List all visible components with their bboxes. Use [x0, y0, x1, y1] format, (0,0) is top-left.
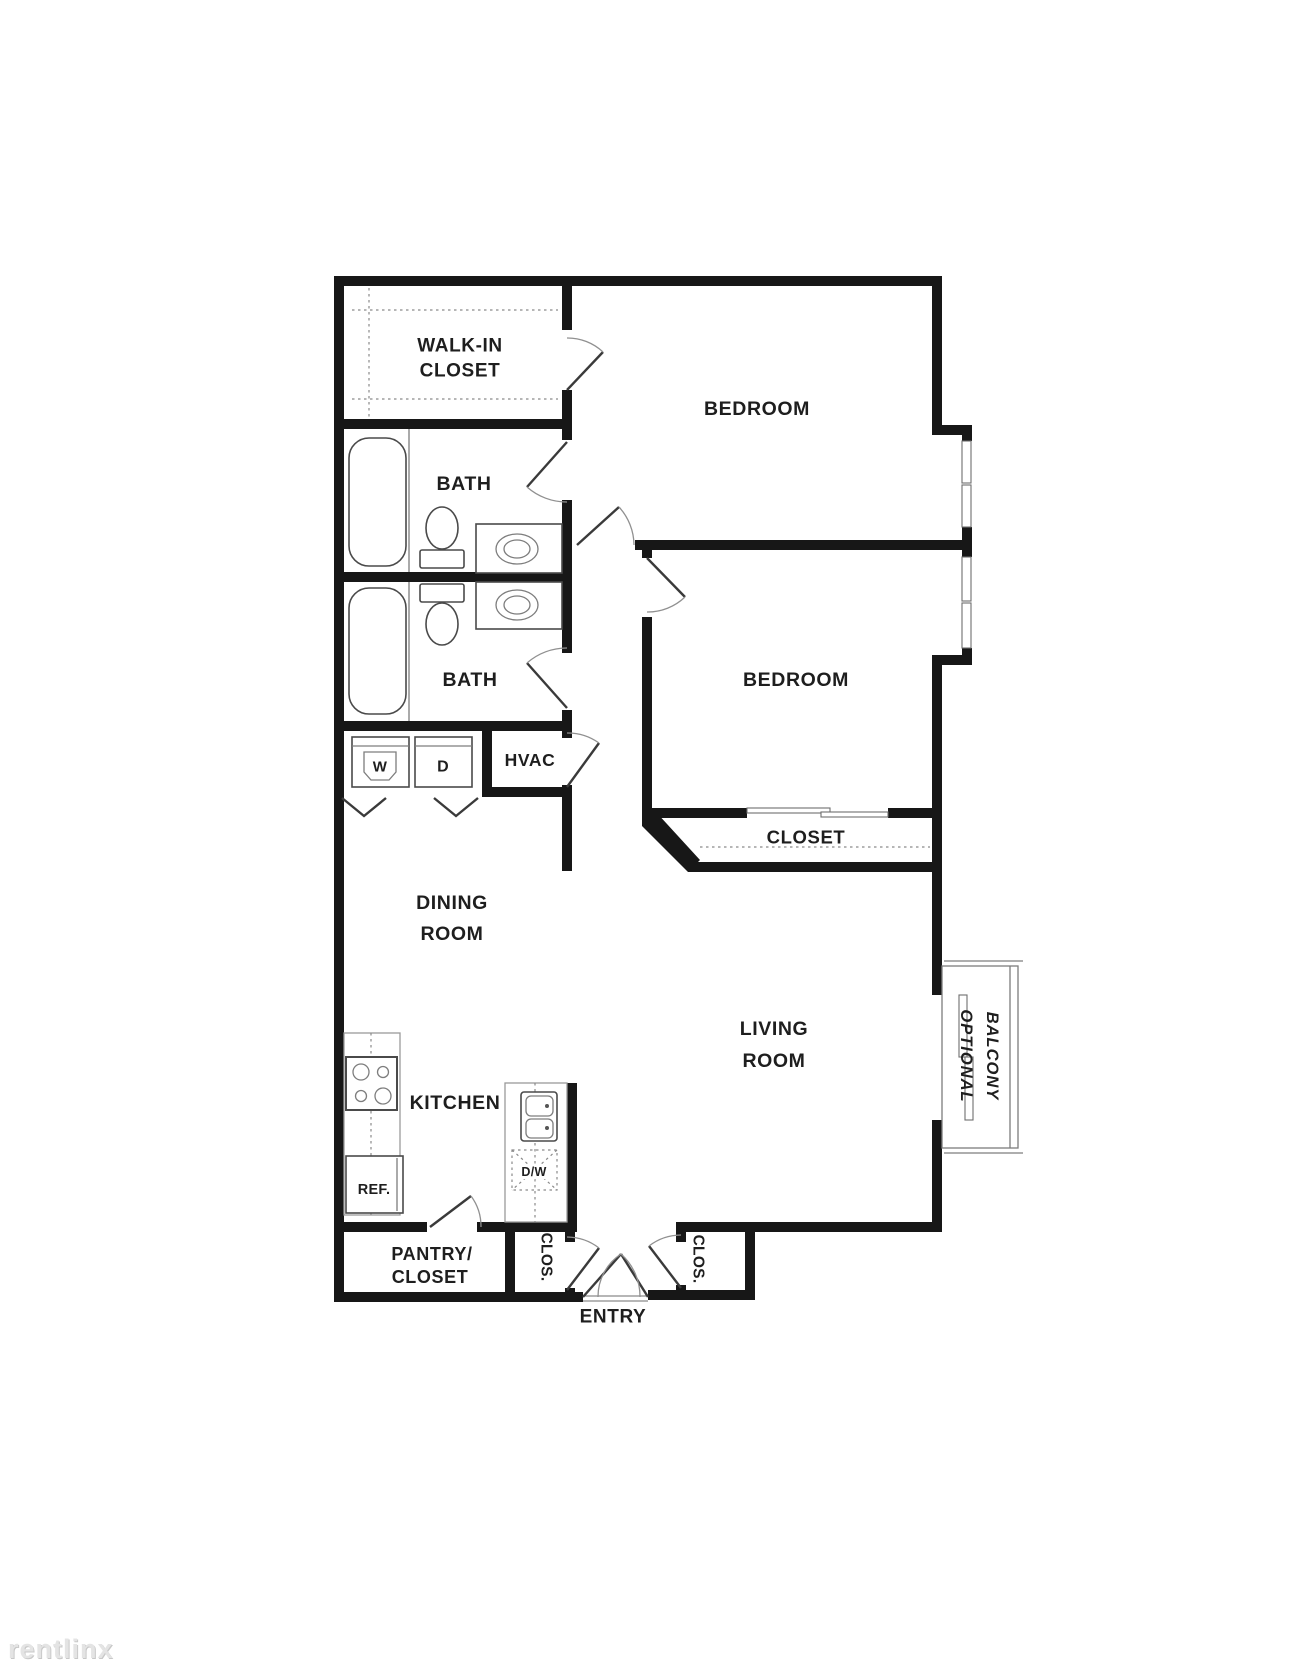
bathtub-icon-2	[349, 582, 409, 721]
label-bedroom-2: BEDROOM	[743, 669, 849, 691]
label-bath-1: BATH	[436, 473, 491, 495]
label-living-line1: LIVING	[740, 1018, 809, 1040]
stove-icon	[346, 1057, 397, 1110]
optional-balcony-outline	[942, 961, 1023, 1153]
exterior-walls	[334, 276, 972, 1302]
interior-walls	[334, 276, 972, 1302]
label-pantry-line1: PANTRY/	[391, 1244, 472, 1264]
toilet-icon-2	[420, 584, 464, 645]
label-dryer: D	[437, 759, 449, 776]
label-clos-right: CLOS.	[690, 1235, 707, 1284]
label-kitchen: KITCHEN	[410, 1092, 501, 1114]
label-clos-left: CLOS.	[538, 1233, 555, 1282]
sink-vanity-icon-2	[476, 582, 562, 629]
label-balcony-line1: OPTIONAL	[957, 1009, 975, 1102]
toilet-icon-1	[420, 507, 464, 568]
label-bedroom-1: BEDROOM	[704, 398, 810, 420]
label-living-line2: ROOM	[742, 1050, 805, 1072]
label-ref: REF.	[358, 1182, 391, 1198]
laundry-bifold-doors	[342, 798, 478, 816]
label-hvac: HVAC	[505, 750, 556, 770]
label-dining-line1: DINING	[416, 892, 488, 914]
label-washer: W	[373, 759, 388, 776]
bathtub-icon-1	[349, 429, 409, 572]
sink-vanity-icon-1	[476, 524, 562, 573]
label-closet: CLOSET	[767, 827, 846, 848]
floor-plan-drawing: WALK-IN CLOSET BEDROOM BATH BATH BEDROOM…	[0, 0, 1298, 1680]
rentlinx-watermark: rentlinx	[8, 1634, 114, 1665]
label-walk-in-closet-line1: WALK-IN	[417, 336, 502, 357]
kitchen-sink-icon	[521, 1092, 557, 1141]
label-pantry-line2: CLOSET	[392, 1267, 469, 1287]
label-walk-in-closet-line2: CLOSET	[420, 361, 501, 382]
room-labels: WALK-IN CLOSET BEDROOM BATH BATH BEDROOM…	[358, 336, 1001, 1328]
label-bath-2: BATH	[442, 669, 497, 691]
label-entry: ENTRY	[580, 1307, 647, 1328]
label-dining-line2: ROOM	[420, 923, 483, 945]
label-dw: D/W	[521, 1165, 546, 1179]
floor-plan-page: WALK-IN CLOSET BEDROOM BATH BATH BEDROOM…	[0, 0, 1298, 1680]
label-balcony-line2: BALCONY	[983, 1012, 1001, 1102]
